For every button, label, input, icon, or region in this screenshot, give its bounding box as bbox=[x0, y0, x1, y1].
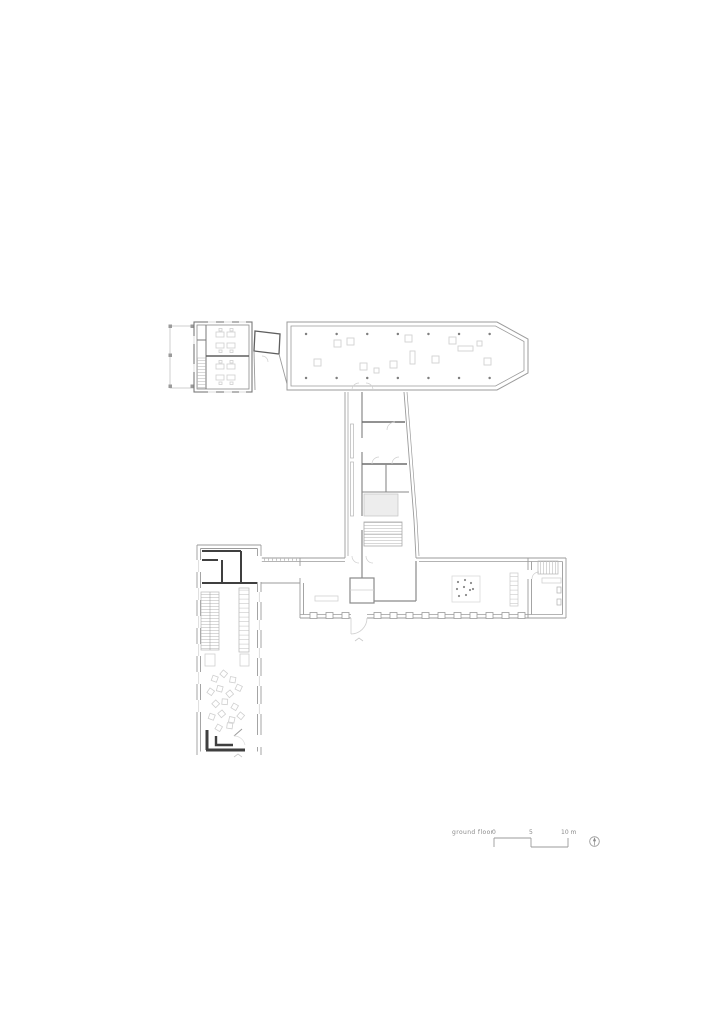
link-corridor bbox=[261, 558, 300, 583]
lobby-room bbox=[350, 578, 374, 603]
shelf-unit bbox=[510, 573, 518, 606]
scale-tick-0: 0 bbox=[492, 829, 496, 836]
link-vestibule bbox=[254, 331, 287, 390]
head-stair bbox=[198, 358, 206, 388]
display-area bbox=[452, 576, 480, 602]
entrance-door bbox=[351, 613, 367, 641]
cafe-seating bbox=[207, 670, 245, 732]
floor-label: ground floor bbox=[452, 829, 494, 836]
service-rooms bbox=[202, 551, 257, 583]
bench bbox=[315, 596, 338, 601]
head-building bbox=[194, 322, 252, 392]
scale-tick-10: 10 m bbox=[561, 829, 577, 836]
exhibition-hall bbox=[287, 322, 528, 390]
south-wing bbox=[298, 558, 566, 641]
north-terrace bbox=[169, 325, 195, 389]
north-arrow-icon bbox=[590, 837, 600, 847]
scale-bar bbox=[494, 838, 568, 847]
connector-wing bbox=[345, 392, 419, 563]
exhibit-stands bbox=[314, 335, 491, 373]
bar-counter bbox=[239, 588, 249, 652]
entrance-vestibule bbox=[206, 729, 245, 757]
floor-plan-drawing: ground floor 0 5 10 m bbox=[0, 0, 728, 1030]
scale-tick-5: 5 bbox=[529, 829, 533, 836]
legend: ground floor 0 5 10 m bbox=[452, 829, 599, 847]
drawing-sheet: ground floor 0 5 10 m bbox=[0, 0, 728, 1030]
east-stair-room bbox=[526, 558, 561, 618]
west-wing bbox=[197, 545, 261, 757]
elevator-shaft bbox=[364, 494, 398, 516]
